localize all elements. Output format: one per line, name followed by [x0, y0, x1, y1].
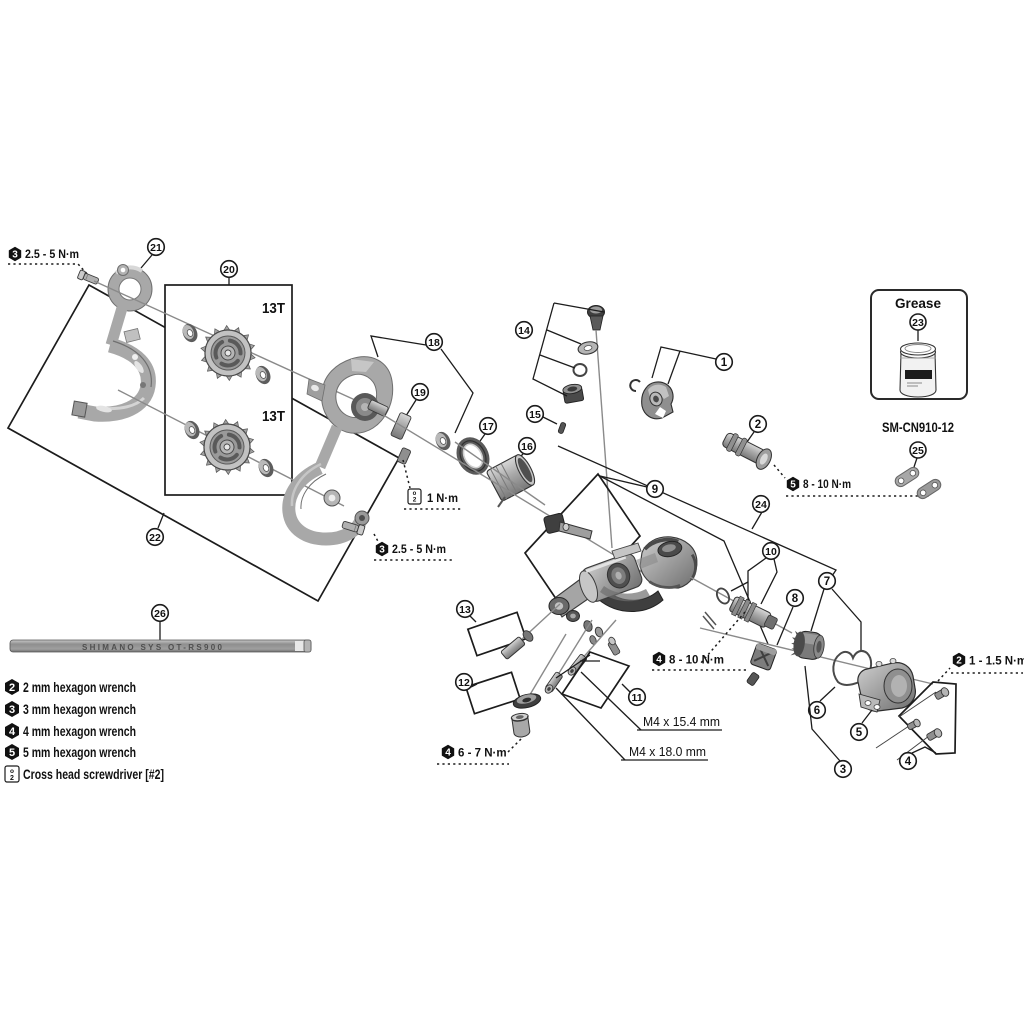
svg-text:8 - 10 N·m: 8 - 10 N·m — [669, 655, 724, 667]
svg-text:SM-CN910-12: SM-CN910-12 — [882, 420, 954, 435]
svg-text:2 mm hexagon wrench: 2 mm hexagon wrench — [23, 679, 136, 695]
svg-text:10: 10 — [765, 546, 777, 558]
svg-text:3 mm hexagon wrench: 3 mm hexagon wrench — [23, 701, 136, 717]
svg-text:M4 x 15.4 mm: M4 x 15.4 mm — [643, 714, 720, 729]
svg-text:Cross head screwdriver [#2]: Cross head screwdriver [#2] — [23, 766, 164, 782]
svg-text:3: 3 — [379, 545, 385, 556]
svg-text:2.5 - 5 N·m: 2.5 - 5 N·m — [392, 544, 446, 556]
svg-text:4: 4 — [905, 756, 912, 768]
svg-text:4 mm hexagon wrench: 4 mm hexagon wrench — [23, 723, 136, 739]
svg-text:o: o — [10, 768, 14, 775]
svg-text:6: 6 — [814, 705, 820, 717]
svg-text:12: 12 — [458, 677, 470, 689]
svg-text:4: 4 — [445, 748, 451, 759]
svg-text:3: 3 — [840, 764, 846, 776]
svg-text:8: 8 — [792, 593, 799, 605]
svg-text:4: 4 — [9, 726, 16, 738]
svg-text:1 N·m: 1 N·m — [427, 493, 458, 505]
svg-text:24: 24 — [755, 499, 767, 511]
svg-text:2: 2 — [755, 419, 761, 431]
svg-text:5 mm hexagon wrench: 5 mm hexagon wrench — [23, 744, 136, 760]
svg-text:19: 19 — [414, 387, 426, 399]
svg-text:2: 2 — [413, 497, 417, 504]
svg-text:2: 2 — [956, 656, 962, 667]
svg-text:20: 20 — [223, 264, 235, 276]
svg-text:4: 4 — [656, 655, 662, 666]
svg-text:17: 17 — [482, 421, 494, 433]
svg-text:26: 26 — [154, 608, 166, 620]
svg-text:2: 2 — [10, 775, 14, 782]
svg-text:Grease: Grease — [895, 295, 941, 311]
svg-text:21: 21 — [150, 242, 162, 254]
svg-text:M4 x 18.0 mm: M4 x 18.0 mm — [629, 744, 706, 759]
svg-text:5: 5 — [856, 727, 863, 739]
svg-text:2: 2 — [9, 682, 15, 694]
svg-text:15: 15 — [529, 409, 541, 421]
svg-text:1: 1 — [721, 357, 728, 369]
svg-text:13T: 13T — [262, 300, 285, 317]
svg-text:13: 13 — [459, 604, 471, 616]
svg-text:3: 3 — [12, 250, 18, 261]
svg-text:23: 23 — [912, 317, 924, 329]
svg-text:18: 18 — [428, 337, 440, 349]
svg-text:7: 7 — [824, 576, 830, 588]
svg-text:11: 11 — [631, 692, 642, 704]
svg-text:14: 14 — [518, 325, 530, 337]
svg-text:1 - 1.5 N·m: 1 - 1.5 N·m — [969, 656, 1024, 668]
svg-text:6 - 7 N·m: 6 - 7 N·m — [458, 748, 507, 760]
svg-text:16: 16 — [521, 441, 533, 453]
svg-text:9: 9 — [652, 484, 658, 496]
svg-text:22: 22 — [149, 532, 161, 544]
svg-text:5: 5 — [9, 747, 15, 759]
svg-text:25: 25 — [912, 445, 924, 457]
svg-text:3: 3 — [9, 704, 15, 716]
svg-text:5: 5 — [790, 480, 796, 491]
svg-text:13T: 13T — [262, 408, 285, 425]
svg-text:2.5 - 5 N·m: 2.5 - 5 N·m — [25, 249, 79, 261]
svg-text:SHIMANO SYS OT-RS900: SHIMANO SYS OT-RS900 — [82, 643, 223, 652]
svg-text:8 - 10 N·m: 8 - 10 N·m — [803, 479, 851, 491]
